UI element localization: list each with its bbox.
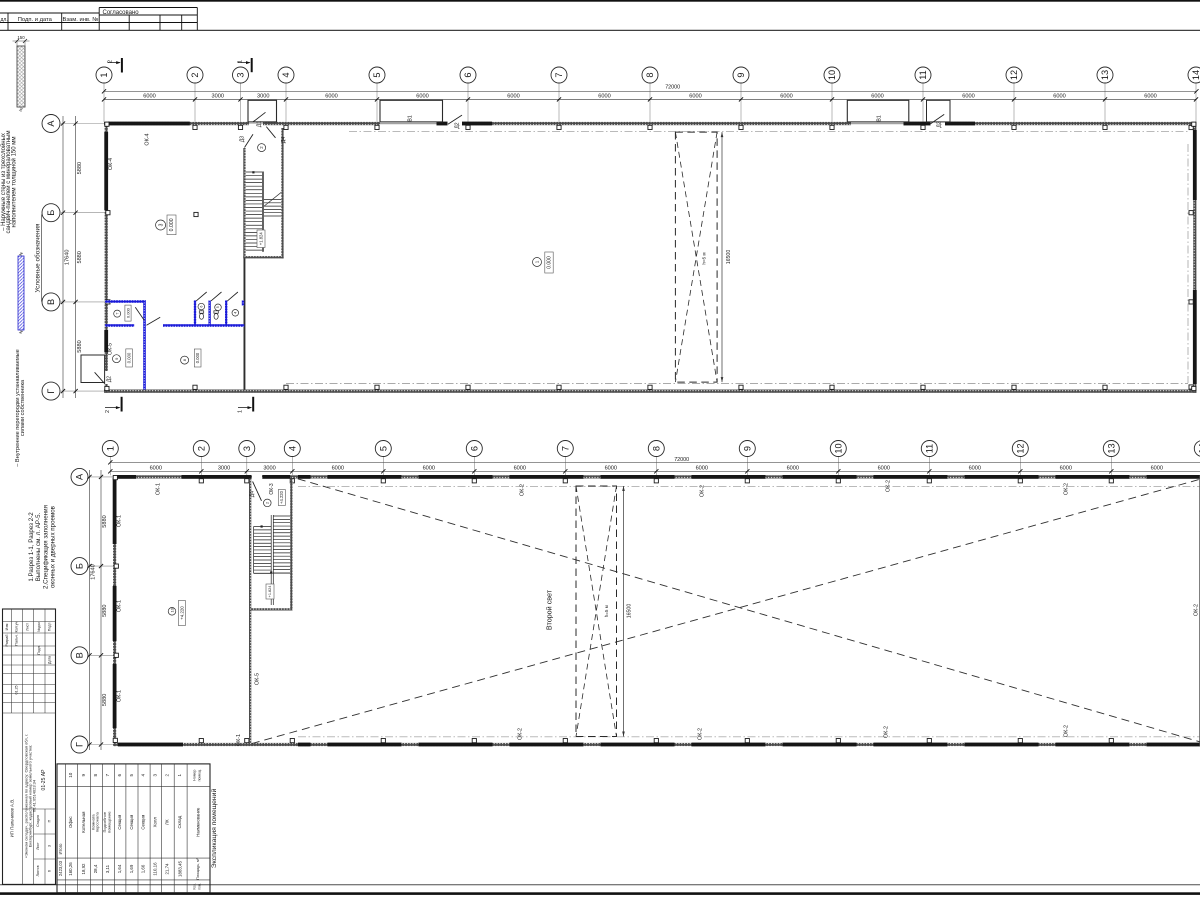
svg-text:ОК-1: ОК-1	[156, 483, 162, 495]
svg-text:2: 2	[105, 410, 111, 413]
svg-text:3,11: 3,11	[105, 864, 110, 873]
svg-text:66:41:0514023:34: 66:41:0514023:34	[32, 779, 37, 812]
svg-text:ИП Пальчиков А.В.: ИП Пальчиков А.В.	[10, 799, 15, 838]
svg-text:17640: 17640	[65, 250, 71, 266]
svg-text:72000: 72000	[665, 85, 680, 91]
svg-text:6000: 6000	[143, 94, 155, 100]
svg-text:7: 7	[105, 773, 110, 776]
svg-text:8: 8	[645, 72, 655, 77]
svg-text:5880: 5880	[77, 162, 83, 174]
svg-text:16500: 16500	[726, 250, 732, 265]
svg-text:5880: 5880	[77, 251, 83, 263]
svg-text:6000: 6000	[1053, 94, 1065, 100]
svg-text:+1.824: +1.824	[258, 232, 263, 246]
svg-text:ОК-2: ОК-2	[1064, 483, 1070, 495]
svg-text:14: 14	[1191, 70, 1200, 80]
svg-text:1: 1	[99, 72, 109, 77]
svg-text:помещение: помещение	[106, 811, 111, 833]
svg-text:1: 1	[238, 60, 244, 63]
svg-text:1883,45: 1883,45	[177, 861, 182, 877]
svg-text:Б: Б	[75, 563, 85, 569]
svg-text:0.000: 0.000	[169, 218, 175, 231]
svg-text:наполнителем толщиной 150 мм: наполнителем толщиной 150 мм	[10, 137, 17, 228]
svg-text:пом.: пом.	[198, 883, 202, 890]
svg-text:8: 8	[652, 446, 662, 451]
svg-text:1: 1	[106, 446, 116, 451]
svg-text:Номер: Номер	[193, 770, 197, 781]
svg-text:6000: 6000	[325, 94, 337, 100]
svg-text:3000: 3000	[263, 465, 275, 471]
svg-text:3000: 3000	[218, 465, 230, 471]
svg-text:6000: 6000	[514, 465, 526, 471]
svg-text:+4.220: +4.220	[279, 490, 284, 504]
svg-text:2: 2	[108, 60, 114, 63]
svg-text:4: 4	[281, 72, 291, 77]
svg-text:h=5 м: h=5 м	[702, 252, 707, 264]
svg-text:персонала: персонала	[95, 811, 100, 832]
svg-text:ОК-2: ОК-2	[698, 728, 704, 740]
svg-text:Подп. и дата: Подп. и дата	[18, 17, 53, 23]
svg-text:П: П	[48, 819, 52, 822]
svg-text:72000: 72000	[674, 457, 689, 463]
svg-text:0.000: 0.000	[126, 352, 131, 363]
svg-text:1,69: 1,69	[129, 864, 134, 873]
svg-text:18,92: 18,92	[81, 863, 86, 875]
svg-text:6000: 6000	[507, 94, 519, 100]
svg-text:ОК-2: ОК-2	[518, 728, 524, 740]
svg-text:110,16: 110,16	[153, 862, 158, 876]
svg-text:2: 2	[266, 502, 270, 504]
svg-text:3000: 3000	[257, 94, 269, 100]
svg-text:Лист: Лист	[36, 842, 40, 850]
svg-text:6000: 6000	[780, 94, 792, 100]
svg-text:Секция: Секция	[129, 814, 134, 830]
svg-text:8: 8	[93, 773, 98, 776]
svg-text:6000: 6000	[871, 94, 883, 100]
svg-text:В: В	[75, 652, 85, 658]
svg-text:Склад: Склад	[177, 815, 182, 828]
svg-text:Б: Б	[46, 210, 56, 216]
svg-text:11: 11	[925, 444, 935, 454]
svg-text:01.25: 01.25	[15, 686, 19, 695]
svg-text:Разраб.: Разраб.	[5, 634, 9, 647]
svg-text:ОК-1: ОК-1	[116, 515, 122, 527]
svg-text:6000: 6000	[150, 465, 162, 471]
svg-text:2: 2	[197, 446, 207, 451]
svg-text:ОК-2: ОК-2	[886, 480, 892, 492]
svg-text:7: 7	[561, 446, 571, 451]
svg-text:ОК-1: ОК-1	[116, 600, 122, 612]
svg-text:5: 5	[129, 773, 134, 776]
svg-text:Согласовано: Согласовано	[103, 10, 140, 16]
svg-text:Д1: Д1	[257, 121, 263, 127]
svg-text:Котельная: Котельная	[81, 811, 86, 833]
svg-text:28,4: 28,4	[93, 864, 98, 873]
svg-text:6000: 6000	[416, 94, 428, 100]
svg-text:Стадия: Стадия	[36, 815, 40, 827]
svg-text:+1.824: +1.824	[268, 586, 272, 598]
svg-text:10: 10	[169, 607, 174, 612]
svg-text:6000: 6000	[598, 94, 610, 100]
svg-text:h=5 м: h=5 м	[604, 605, 609, 617]
svg-text:9: 9	[81, 773, 86, 776]
svg-text:Выполнены см. л. АР-5.: Выполнены см. л. АР-5.	[35, 512, 42, 581]
svg-text:5880: 5880	[102, 515, 108, 527]
svg-text:ОК-5: ОК-5	[254, 673, 260, 685]
svg-text:150: 150	[17, 35, 25, 40]
svg-text:1,64: 1,64	[117, 864, 122, 873]
svg-text:3: 3	[153, 773, 158, 776]
svg-text:3: 3	[48, 845, 52, 847]
svg-text:10: 10	[827, 70, 837, 80]
svg-text:13: 13	[1107, 443, 1117, 453]
svg-text:6000: 6000	[969, 465, 981, 471]
svg-text:Дата: Дата	[48, 656, 52, 664]
svg-text:1: 1	[238, 410, 244, 413]
svg-text:6: 6	[463, 72, 473, 77]
svg-text:В1: В1	[408, 115, 414, 122]
svg-text:6: 6	[48, 870, 52, 872]
svg-text:Взам. инв. №: Взам. инв. №	[63, 17, 99, 23]
svg-text:3: 3	[242, 446, 252, 451]
svg-text:Кол.уч: Кол.уч	[15, 621, 19, 632]
svg-text:6000: 6000	[689, 94, 701, 100]
svg-text:7: 7	[115, 313, 119, 315]
svg-text:ОК-4: ОК-4	[108, 158, 114, 170]
svg-text:Подп.: Подп.	[37, 645, 41, 655]
svg-text:16500: 16500	[626, 604, 632, 619]
svg-text:Д3: Д3	[240, 136, 246, 142]
svg-text:12: 12	[1009, 70, 1019, 80]
svg-text:12: 12	[1016, 443, 1026, 453]
svg-text:В1: В1	[876, 115, 882, 122]
svg-text:2423,03: 2423,03	[58, 860, 63, 876]
svg-text:1,66: 1,66	[141, 864, 146, 873]
svg-text:Подп: Подп	[48, 623, 52, 632]
svg-text:6000: 6000	[696, 465, 708, 471]
svg-text:ОК-5: ОК-5	[108, 343, 114, 355]
svg-text:Д4: Д4	[250, 491, 256, 497]
svg-text:1.Разрез 1-1, Разрез 2-2: 1.Разрез 1-1, Разрез 2-2	[28, 512, 35, 582]
svg-text:1: 1	[177, 773, 182, 776]
svg-text:силами собственника: силами собственника	[20, 379, 26, 436]
svg-text:ОК-2: ОК-2	[1064, 725, 1070, 737]
svg-text:9: 9	[736, 72, 746, 77]
svg-text:Пальч.: Пальч.	[15, 634, 19, 645]
svg-text:5880: 5880	[102, 694, 108, 706]
svg-text:Д2: Д2	[455, 122, 461, 128]
svg-text:ОК-2: ОК-2	[700, 485, 706, 497]
svg-text:0.000: 0.000	[195, 352, 200, 363]
svg-text:А: А	[75, 473, 85, 480]
svg-text:6000: 6000	[878, 465, 890, 471]
svg-text:21,74: 21,74	[165, 863, 170, 875]
svg-text:2: 2	[165, 773, 170, 776]
svg-text:2: 2	[190, 72, 200, 77]
svg-text:6000: 6000	[1060, 465, 1072, 471]
svg-text:ОК-1: ОК-1	[236, 734, 242, 746]
svg-text:1: 1	[535, 260, 540, 263]
svg-text:0.000: 0.000	[125, 307, 130, 318]
svg-text:ЛК: ЛК	[165, 819, 170, 825]
svg-text:Изм: Изм	[5, 623, 9, 630]
svg-text:ОК-2: ОК-2	[884, 726, 890, 738]
svg-text:Итого: Итого	[58, 843, 63, 855]
svg-text:оконных и дверных проемов: оконных и дверных проемов	[50, 505, 57, 588]
svg-text:помещ.: помещ.	[198, 769, 202, 781]
svg-text:3: 3	[236, 72, 246, 77]
svg-text:Г: Г	[46, 389, 56, 394]
svg-text:10: 10	[834, 443, 844, 453]
svg-text:Листов: Листов	[36, 865, 40, 876]
svg-text:13: 13	[1100, 70, 1110, 80]
svg-text:№док: №док	[37, 622, 41, 632]
svg-text:3000: 3000	[212, 94, 224, 100]
svg-text:2.Спецификация заполнения: 2.Спецификация заполнения	[42, 505, 49, 589]
svg-text:6000: 6000	[423, 465, 435, 471]
svg-text:6000: 6000	[605, 465, 617, 471]
svg-text:5880: 5880	[77, 340, 83, 352]
svg-text:5880: 5880	[102, 604, 108, 616]
svg-text:3: 3	[158, 223, 164, 226]
svg-text:4: 4	[141, 773, 146, 776]
svg-text:5: 5	[216, 306, 220, 308]
svg-text:Секция: Секция	[141, 814, 146, 830]
svg-text:6000: 6000	[1151, 465, 1163, 471]
svg-text:5: 5	[372, 72, 382, 77]
svg-text:ОК-2: ОК-2	[520, 484, 526, 496]
svg-text:11: 11	[918, 70, 928, 80]
svg-text:ОК-4: ОК-4	[145, 133, 151, 145]
svg-text:7: 7	[554, 72, 564, 77]
svg-text:6000: 6000	[1144, 94, 1156, 100]
svg-text:Офис: Офис	[68, 816, 73, 828]
svg-text:Кол.: Кол.	[193, 883, 197, 889]
svg-text:6: 6	[470, 446, 480, 451]
svg-text:6000: 6000	[962, 94, 974, 100]
svg-text:4: 4	[233, 312, 237, 314]
svg-text:Д2: Д2	[107, 376, 113, 382]
svg-text:4: 4	[288, 446, 298, 451]
svg-text:Д2: Д2	[936, 121, 942, 127]
svg-text:160,26: 160,26	[68, 862, 73, 876]
svg-text:ОК-3: ОК-3	[269, 483, 275, 494]
svg-text:Д4: Д4	[281, 137, 287, 143]
svg-text:17640: 17640	[91, 564, 97, 580]
svg-text:Экспликация помещений: Экспликация помещений	[210, 789, 218, 869]
svg-text:9: 9	[743, 446, 753, 451]
svg-text:+4.220: +4.220	[179, 606, 184, 620]
svg-text:ОК-2: ОК-2	[1194, 604, 1200, 616]
svg-text:Площадь, м²: Площадь, м²	[196, 858, 200, 880]
svg-text:6: 6	[117, 773, 122, 776]
svg-text:01-25 АР: 01-25 АР	[41, 769, 47, 791]
svg-text:Наименование: Наименование	[196, 807, 201, 837]
svg-text:Условные обозначения: Условные обозначения	[34, 223, 42, 293]
svg-text:А: А	[46, 120, 56, 127]
svg-text:Секция: Секция	[117, 814, 122, 830]
svg-text:6: 6	[199, 306, 203, 308]
svg-text:ОК-1: ОК-1	[116, 690, 122, 702]
svg-text:Второй свет: Второй свет	[545, 589, 554, 630]
svg-text:5: 5	[379, 446, 389, 451]
svg-text:дл.: дл.	[1, 17, 8, 23]
svg-text:6000: 6000	[332, 465, 344, 471]
svg-text:6000: 6000	[787, 465, 799, 471]
svg-text:В: В	[46, 299, 56, 305]
svg-text:Г: Г	[75, 742, 85, 747]
svg-text:10: 10	[68, 772, 73, 778]
svg-text:Лист: Лист	[26, 623, 30, 631]
svg-text:0.000: 0.000	[547, 256, 553, 269]
svg-text:Холл: Холл	[153, 817, 158, 828]
